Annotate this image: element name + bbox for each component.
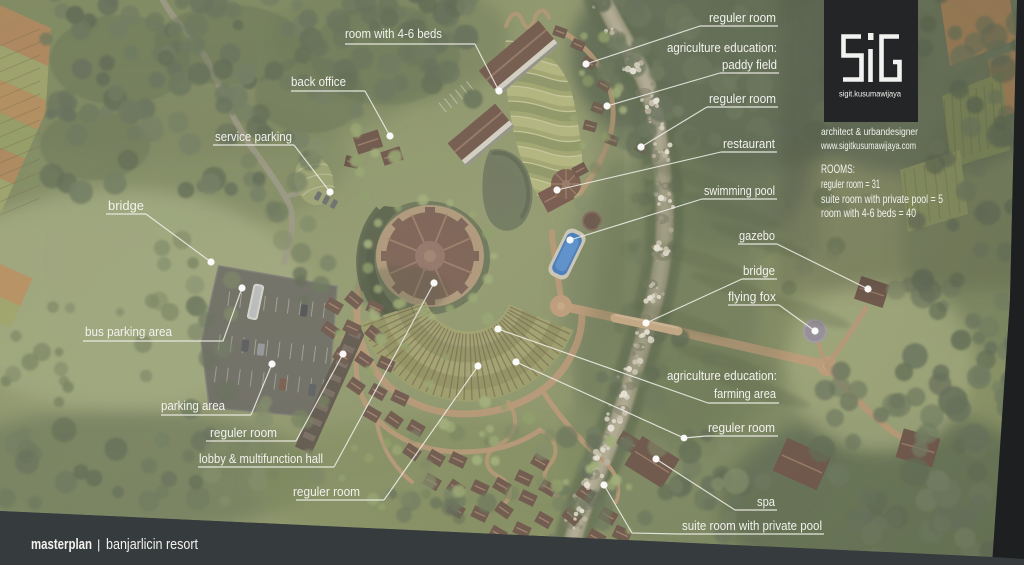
svg-text:spa: spa [757,494,776,509]
svg-text:agriculture education:: agriculture education: [667,368,777,383]
svg-text:agriculture education:: agriculture education: [667,40,777,55]
svg-text:suite room with private pool =: suite room with private pool = 5 [821,192,943,206]
svg-text:reguler room: reguler room [709,91,776,106]
svg-text:www.sigitkusumawijaya.com: www.sigitkusumawijaya.com [820,140,916,152]
svg-text:reguler room = 31: reguler room = 31 [821,177,880,191]
svg-text:reguler room: reguler room [293,484,360,499]
svg-text:parking area: parking area [161,398,226,413]
svg-text:reguler room: reguler room [708,420,775,435]
svg-text:bus parking area: bus parking area [85,324,173,339]
svg-text:architect & urbandesigner: architect & urbandesigner [821,126,918,138]
svg-text:service parking: service parking [215,129,292,144]
svg-text:paddy field: paddy field [722,57,777,72]
svg-text:sigit.kusumawijaya: sigit.kusumawijaya [839,89,901,99]
svg-text:room with 4-6 beds: room with 4-6 beds [345,26,442,41]
svg-text:reguler room: reguler room [709,10,776,25]
svg-text:|: | [97,537,100,552]
svg-text:room with 4-6 beds = 40: room with 4-6 beds = 40 [821,206,916,220]
svg-text:back office: back office [291,74,346,89]
svg-text:suite room with private pool: suite room with private pool [682,518,822,533]
svg-text:banjarlicin resort: banjarlicin resort [106,537,198,553]
svg-text:flying fox: flying fox [728,289,776,304]
svg-text:restaurant: restaurant [723,136,775,151]
svg-text:bridge: bridge [108,198,144,213]
svg-text:farming area: farming area [714,386,777,401]
svg-text:swimming pool: swimming pool [704,183,775,198]
svg-text:masterplan: masterplan [31,537,92,553]
svg-text:gazebo: gazebo [739,228,775,243]
svg-text:bridge: bridge [743,263,775,278]
svg-text:lobby & multifunction hall: lobby & multifunction hall [199,451,323,466]
svg-text:reguler room: reguler room [210,425,277,440]
svg-text:ROOMS:: ROOMS: [821,162,855,176]
